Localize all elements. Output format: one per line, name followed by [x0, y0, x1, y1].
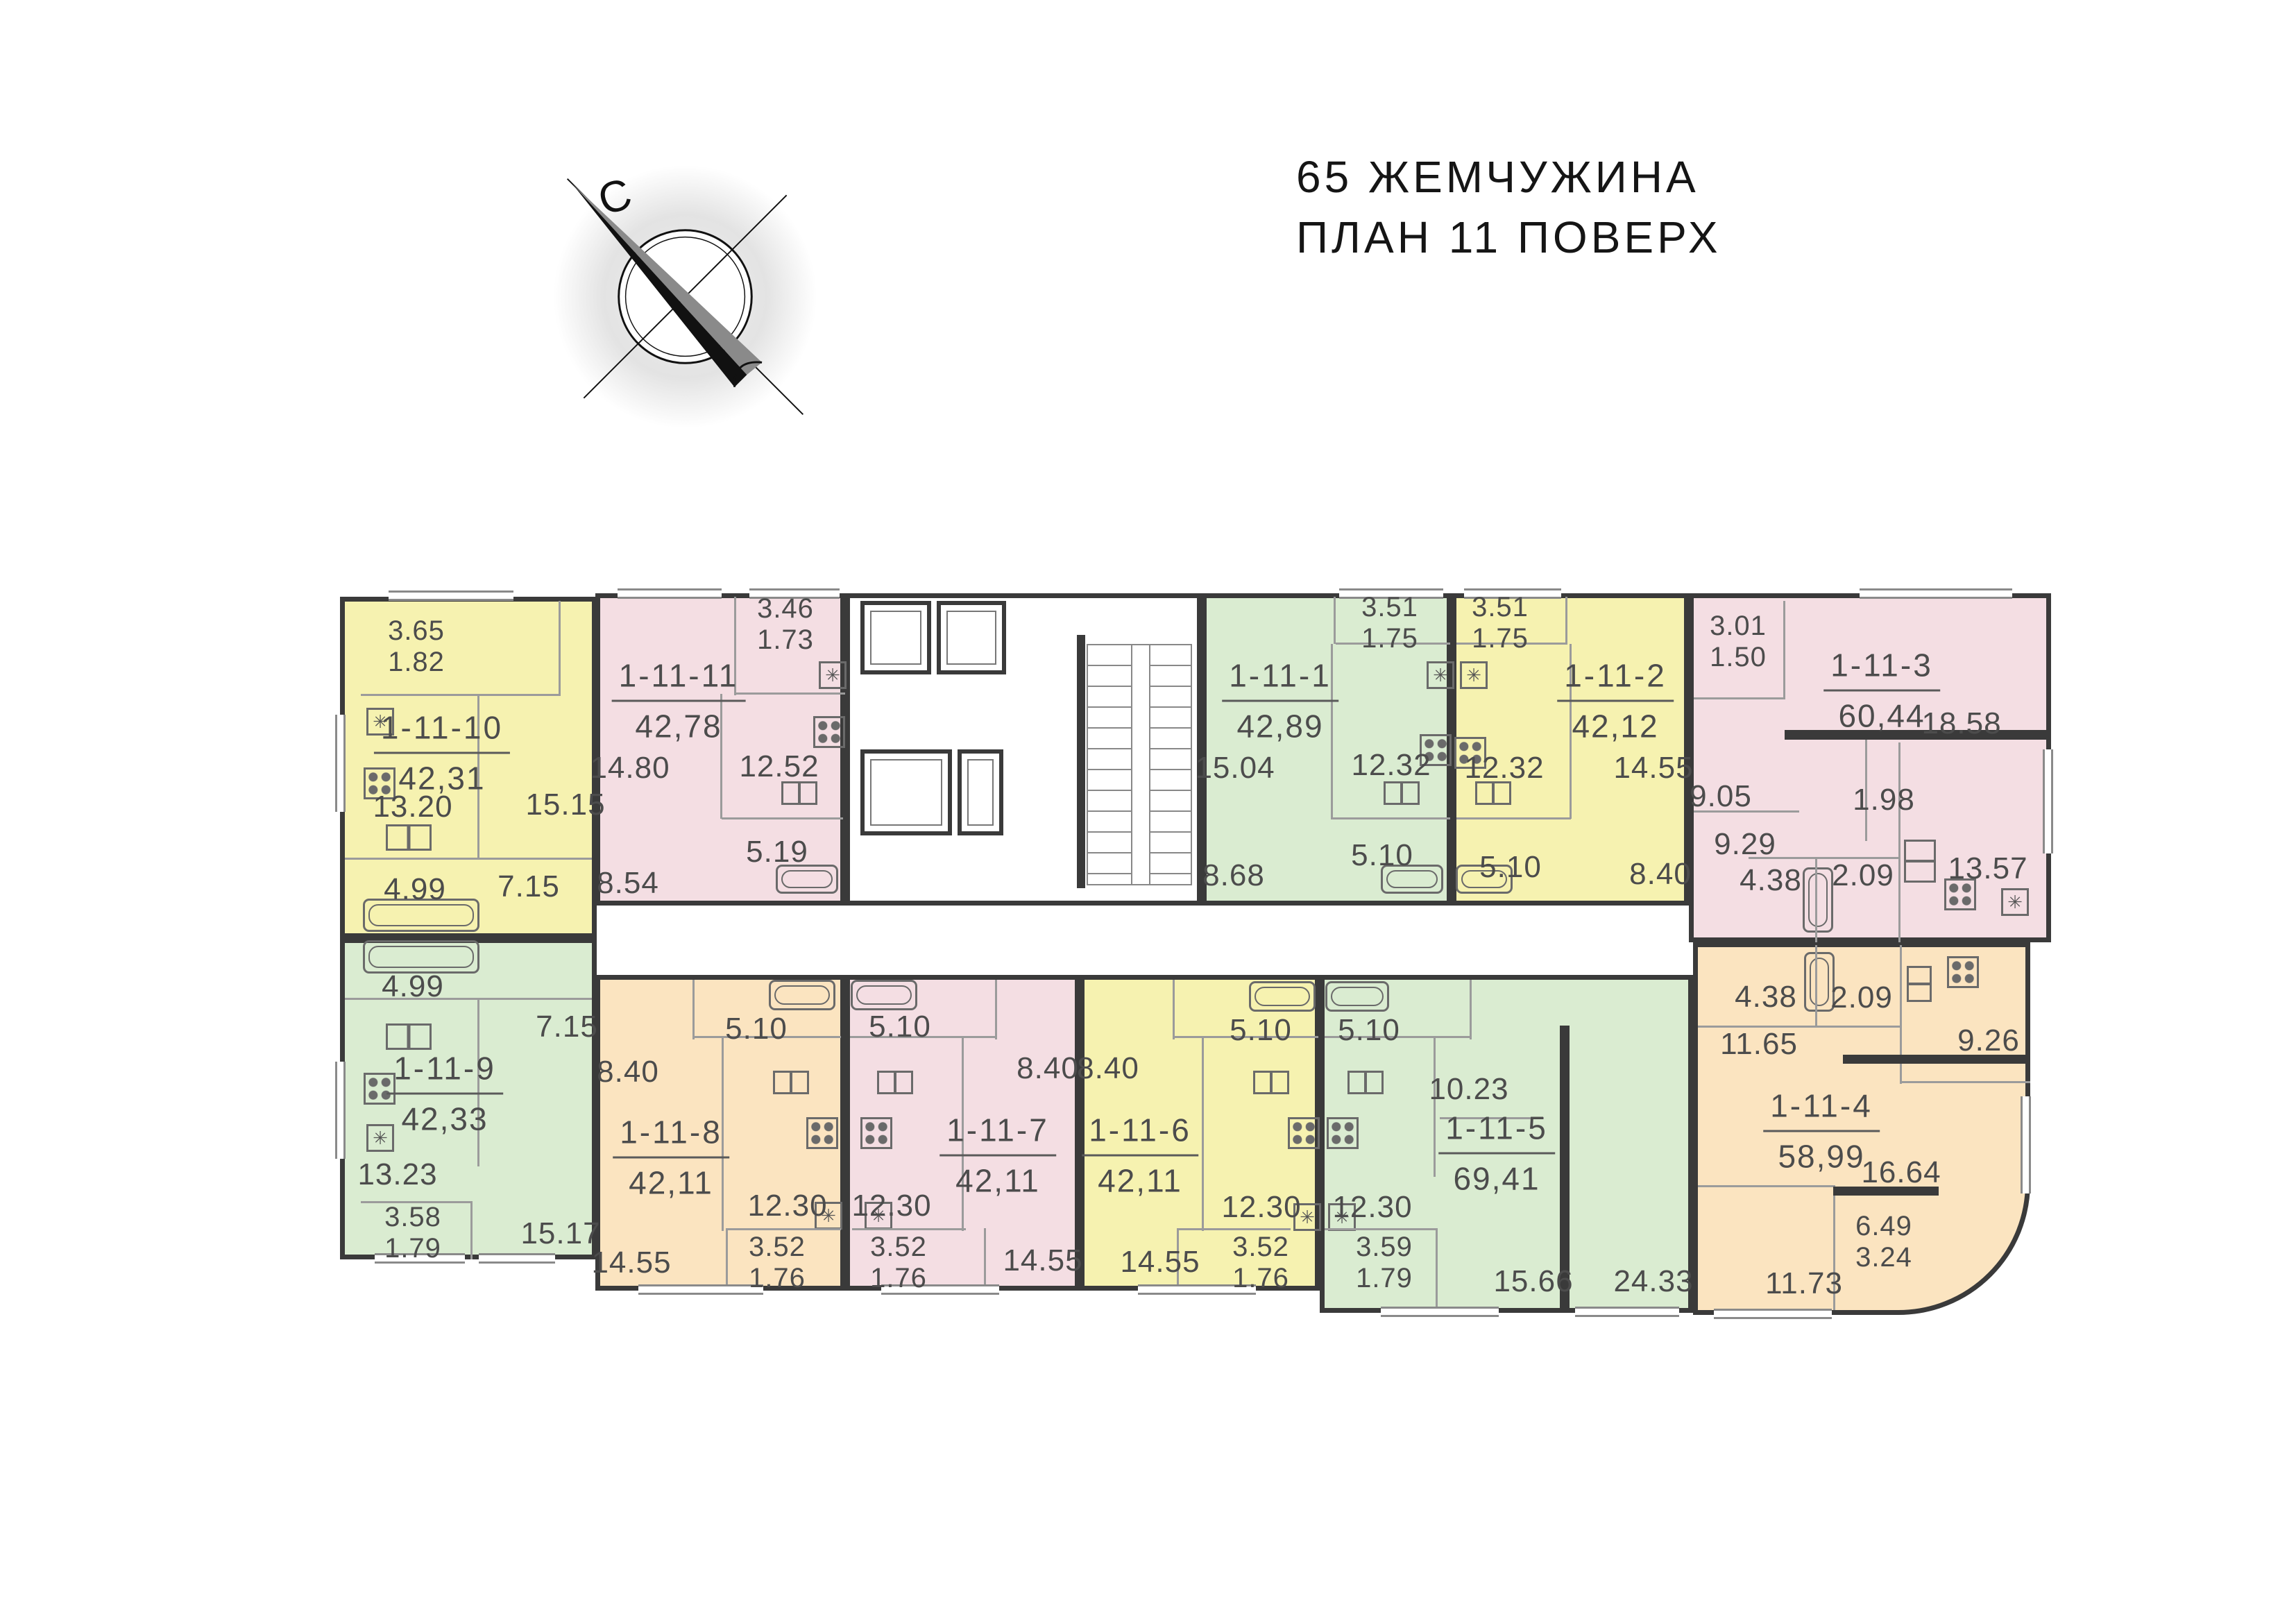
room-area-label: 10.23: [1429, 1074, 1508, 1105]
balcony-reduced-area: 1.76: [749, 1263, 806, 1294]
balcony-reduced-area: 3.24: [1855, 1242, 1912, 1273]
balcony-area-label: 3.59 1.79: [1356, 1232, 1413, 1294]
wall: [1470, 980, 1472, 1039]
wall: [722, 817, 843, 819]
plan-title: 65 ЖЕМЧУЖИНА ПЛАН 11 ПОВЕРХ: [1296, 147, 1721, 268]
room-area-label: 8.40: [1629, 859, 1692, 890]
balcony-area: 6.49: [1855, 1211, 1912, 1242]
balcony-reduced-area: 1.73: [757, 624, 814, 656]
wall: [1815, 859, 1817, 942]
room-area-label: 8.68: [1202, 860, 1265, 891]
wall: [1694, 697, 1785, 699]
wall: [1177, 1228, 1291, 1230]
unit-label-1-11-8: 1-11-8 42,11: [613, 1114, 729, 1202]
unit-number: 1-11-2: [1557, 657, 1674, 702]
room-area-label: 8.40: [1017, 1053, 1079, 1084]
room-area-label: 1.98: [1853, 785, 1915, 815]
wall: [1698, 1185, 1835, 1187]
room-area-label: 5.10: [1351, 840, 1413, 871]
kitchen-sink-icon: [781, 781, 817, 805]
balcony-area: 3.59: [1356, 1232, 1413, 1263]
kitchen-sink-icon: [1475, 781, 1511, 805]
unit-total-area: 42,11: [939, 1157, 1056, 1200]
wall: [345, 858, 592, 860]
balcony-reduced-area: 1.82: [388, 647, 445, 678]
balcony-reduced-area: 1.79: [1356, 1263, 1413, 1294]
balcony-area-label: 3.01 1.50: [1710, 611, 1767, 673]
balcony-area-label: 3.52 1.76: [1232, 1232, 1289, 1294]
unit-total-area: 42,33: [386, 1095, 503, 1138]
elevator-shaft: [860, 601, 931, 674]
room-area-label: 13.23: [357, 1159, 437, 1190]
wall: [1331, 817, 1450, 819]
wall: [470, 1201, 473, 1259]
wall: [726, 1228, 841, 1230]
room-area-label: 11.73: [1765, 1268, 1843, 1299]
unit-total-area: 42,12: [1557, 702, 1674, 745]
unit-number: 1-11-9: [386, 1050, 503, 1095]
balcony-area: 3.52: [870, 1232, 927, 1263]
kitchen-sink-icon: [1907, 966, 1932, 1002]
service-shaft: [958, 749, 1003, 835]
kitchen-sink-icon: [1347, 1071, 1384, 1094]
room-area-label: 14.55: [1613, 753, 1693, 783]
kitchen-sink-icon: [877, 1071, 913, 1094]
wall: [995, 980, 997, 1039]
wall: [726, 1228, 728, 1291]
balcony-area-label: 3.46 1.73: [757, 593, 814, 656]
room-area-label: 14.55: [1003, 1246, 1082, 1276]
stove-icon: [1288, 1117, 1320, 1149]
room-area-label: 5.19: [746, 837, 808, 867]
wall: [1077, 635, 1085, 888]
balcony-area: 3.52: [749, 1232, 806, 1263]
balcony-area: 3.51: [1472, 592, 1529, 623]
wall: [1173, 980, 1175, 1039]
room-area-label: 12.32: [1464, 753, 1544, 783]
bathtub-icon: [776, 865, 838, 894]
unit-number: 1-11-3: [1823, 647, 1940, 692]
window-marker: [2021, 1096, 2031, 1193]
unit-label-1-11-5: 1-11-5 69,41: [1438, 1110, 1555, 1198]
wall: [1565, 597, 1567, 644]
window-marker: [618, 588, 722, 599]
kitchen-sink-icon: [773, 1071, 809, 1094]
balcony-area-label: 3.51 1.75: [1361, 592, 1418, 654]
floor-plan-page: С 65 ЖЕМЧУЖИНА ПЛАН 11 ПОВЕРХ: [0, 0, 2296, 1623]
wall: [1783, 601, 1785, 699]
bathtub-icon: [769, 980, 835, 1010]
kitchen-sink-icon: [1904, 840, 1936, 883]
unit-label-1-11-1: 1-11-1 42,89: [1222, 657, 1338, 745]
boiler-icon: [2001, 888, 2029, 916]
window-marker: [1381, 1307, 1499, 1317]
unit-total-area: 42,78: [612, 702, 746, 745]
staircase: [1087, 644, 1192, 885]
kitchen-sink-icon: [386, 1023, 432, 1050]
wall: [1202, 1038, 1204, 1231]
room-area-label: 4.99: [382, 971, 444, 1002]
room-area-label: 8.40: [1077, 1053, 1139, 1084]
unit-total-area: 42,89: [1222, 702, 1338, 745]
balcony-reduced-area: 1.76: [1232, 1263, 1289, 1294]
room-area-label: 14.55: [591, 1248, 671, 1278]
bathtub-icon: [1325, 981, 1389, 1012]
unit-total-area: 42,11: [613, 1159, 729, 1202]
plan-title-line1: 65 ЖЕМЧУЖИНА: [1296, 147, 1721, 207]
balcony-area-label: 3.52 1.76: [749, 1232, 806, 1294]
wall: [1325, 1228, 1437, 1230]
unit-number: 1-11-5: [1438, 1110, 1555, 1155]
wall: [1436, 1228, 1438, 1313]
wall: [1434, 1038, 1436, 1177]
kitchen-sink-icon: [386, 824, 432, 851]
room-area-label: 7.15: [498, 872, 560, 902]
wall: [1898, 742, 1900, 942]
elevator-shaft: [937, 601, 1006, 674]
balcony-reduced-area: 1.75: [1472, 623, 1529, 654]
wall: [1900, 1081, 2030, 1083]
window-marker: [1714, 1309, 1832, 1319]
balcony-reduced-area: 1.79: [384, 1233, 441, 1264]
room-area-label: 2.09: [1830, 983, 1893, 1013]
unit-number: 1-11-11: [612, 657, 746, 702]
room-area-label: 12.30: [851, 1191, 931, 1221]
unit-total-area: 69,41: [1438, 1155, 1555, 1198]
unit-total-area: 42,11: [1082, 1157, 1198, 1200]
room-area-label: 8.54: [597, 868, 659, 899]
stove-icon: [806, 1117, 838, 1149]
room-area-label: 12.52: [739, 751, 819, 782]
room-area-label: 12.32: [1351, 750, 1431, 781]
plan-title-line2: ПЛАН 11 ПОВЕРХ: [1296, 207, 1721, 268]
boiler-icon: [819, 661, 847, 689]
room-area-label: 7.15: [536, 1012, 598, 1042]
room-area-label: 12.30: [1332, 1192, 1412, 1223]
room-area-label: 14.55: [1120, 1247, 1200, 1277]
room-area-label: 15.04: [1195, 753, 1275, 783]
room-area-label: 9.29: [1714, 829, 1776, 860]
balcony-area-label: 3.58 1.79: [384, 1202, 441, 1264]
balcony-reduced-area: 1.50: [1710, 642, 1767, 673]
wall: [1456, 817, 1571, 819]
window-marker: [335, 715, 346, 812]
balcony-area: 3.51: [1361, 592, 1418, 623]
elevator-shaft: [860, 749, 952, 835]
balcony-area-label: 3.51 1.75: [1472, 592, 1529, 654]
room-area-label: 2.09: [1832, 860, 1894, 891]
balcony-reduced-area: 1.75: [1361, 623, 1418, 654]
bathtub-icon: [851, 980, 917, 1010]
unit-label-1-11-11: 1-11-11 42,78: [612, 657, 746, 745]
unit-number: 1-11-10: [374, 709, 510, 754]
kitchen-sink-icon: [1384, 781, 1420, 805]
wall: [559, 601, 561, 696]
balcony-area: 3.01: [1710, 611, 1767, 642]
stove-icon: [860, 1117, 892, 1149]
room-area-label: 12.30: [747, 1191, 827, 1221]
room-area-label: 9.26: [1957, 1026, 2020, 1056]
room-area-label: 16.64: [1861, 1157, 1941, 1188]
wall: [734, 692, 845, 695]
room-area-label: 11.65: [1720, 1029, 1798, 1060]
room-area-label: 4.38: [1735, 982, 1797, 1012]
boiler-icon: [1427, 661, 1454, 689]
wall: [852, 1228, 966, 1230]
window-marker: [1860, 588, 2012, 599]
unit-label-1-11-2: 1-11-2 42,12: [1557, 657, 1674, 745]
stove-icon: [1327, 1117, 1359, 1149]
balcony-area-label: 3.52 1.76: [870, 1232, 927, 1294]
wall: [984, 1228, 986, 1291]
unit-label-1-11-7: 1-11-7 42,11: [939, 1112, 1056, 1200]
window-marker: [2043, 749, 2053, 853]
room-area-label: 5.10: [1338, 1015, 1400, 1046]
room-area-label: 12.30: [1221, 1192, 1301, 1223]
room-area-label: 15.66: [1493, 1266, 1573, 1297]
wall: [1815, 945, 1817, 1027]
window-marker: [1575, 1307, 1679, 1317]
bathtub-icon: [363, 940, 479, 974]
unit-number: 1-11-6: [1082, 1112, 1198, 1157]
stove-icon: [813, 716, 845, 748]
wall: [692, 980, 695, 1039]
compass-north-icon: С: [548, 160, 822, 434]
bathtub-icon: [1803, 867, 1833, 933]
balcony-area: 3.58: [384, 1202, 441, 1233]
room-area-label: 9.05: [1690, 781, 1752, 812]
balcony-area: 3.46: [757, 593, 814, 624]
room-area-label: 4.38: [1740, 865, 1802, 896]
room-area-label: 5.10: [725, 1014, 788, 1044]
room-area-label: 5.10: [1479, 852, 1542, 883]
room-area-label: 13.57: [1948, 853, 2027, 884]
balcony-area: 3.52: [1232, 1232, 1289, 1263]
balcony-area-label: 6.49 3.24: [1855, 1211, 1912, 1273]
boiler-icon: [1460, 661, 1488, 689]
wall: [1334, 597, 1336, 644]
wall: [361, 694, 561, 696]
unit-number: 1-11-1: [1222, 657, 1338, 702]
room-area-label: 13.20: [373, 792, 452, 822]
room-area-label: 4.99: [384, 874, 446, 905]
unit-number: 1-11-8: [613, 1114, 729, 1159]
balcony-area: 3.65: [388, 615, 445, 647]
room-area-label: 24.33: [1613, 1266, 1693, 1297]
window-marker: [638, 1284, 763, 1295]
room-area-label: 5.10: [869, 1012, 931, 1042]
stove-icon: [1947, 956, 1979, 988]
room-area-label: 5.10: [1230, 1015, 1292, 1046]
bathtub-icon: [1249, 981, 1316, 1012]
unit-label-1-11-6: 1-11-6 42,11: [1082, 1112, 1198, 1200]
window-marker: [479, 1253, 555, 1264]
balcony-area-label: 3.65 1.82: [388, 615, 445, 678]
balcony-reduced-area: 1.76: [870, 1263, 927, 1294]
room-area-label: 15.17: [520, 1218, 600, 1249]
unit-label-1-11-9: 1-11-9 42,33: [386, 1050, 503, 1138]
unit-number: 1-11-4: [1763, 1087, 1880, 1132]
room-area-label: 15.15: [525, 790, 605, 820]
window-marker: [389, 590, 513, 601]
unit-label-1-11-10: 1-11-10 42,31: [374, 709, 510, 797]
window-marker: [335, 1062, 346, 1159]
kitchen-sink-icon: [1253, 1071, 1289, 1094]
room-area-label: 18.58: [1921, 708, 2001, 739]
room-area-label: 14.80: [590, 753, 670, 783]
unit-number: 1-11-7: [939, 1112, 1056, 1157]
room-area-label: 8.40: [597, 1057, 659, 1087]
